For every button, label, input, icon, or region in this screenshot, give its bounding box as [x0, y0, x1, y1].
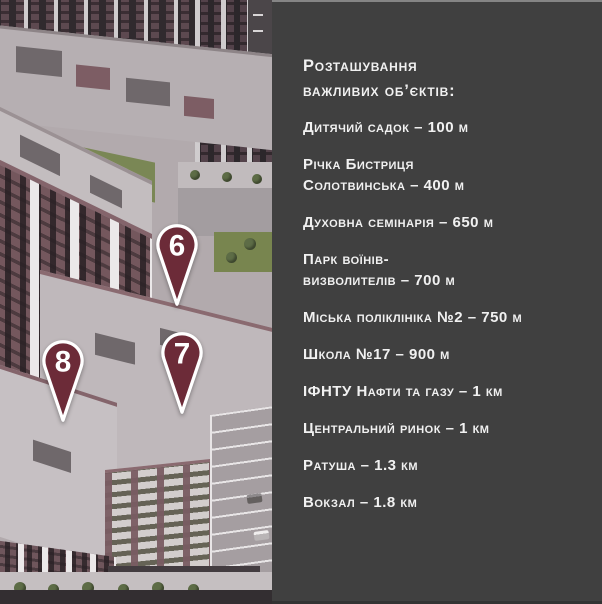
rooftop-box	[20, 135, 60, 177]
rooftop-box	[16, 46, 62, 77]
map-pin-8: 8	[40, 338, 86, 426]
crosswalk-mark	[253, 30, 263, 32]
location-item-market: Центральний ринок – 1 км	[303, 418, 580, 439]
location-item-kindergarten: Дитячий садок – 100 м	[303, 117, 580, 138]
location-item-station: Вокзал – 1.8 км	[303, 492, 580, 513]
tree	[244, 238, 256, 250]
crosswalk-mark	[253, 14, 263, 16]
map-pin-6: 6	[154, 222, 200, 310]
parking-lot	[210, 406, 272, 587]
lawn	[214, 232, 272, 272]
rooftop-gable	[184, 96, 214, 119]
rooftop-gable	[76, 64, 110, 90]
location-item-school: Школа №17 – 900 м	[303, 344, 580, 365]
aerial-render: 6 7 8	[0, 0, 272, 604]
tree	[190, 170, 200, 180]
location-item-polyclinic: Міська поліклініка №2 – 750 м	[303, 307, 580, 328]
pin-number: 6	[169, 229, 186, 262]
map-pin-7: 7	[159, 330, 205, 418]
locations-panel: Розташування важливих об’єктів: Дитячий …	[272, 0, 602, 604]
pin-number: 7	[174, 337, 191, 370]
road	[0, 590, 272, 604]
location-item-university: ІФНТУ Нафти та газу – 1 км	[303, 381, 580, 402]
location-item-townhall: Ратуша – 1.3 км	[303, 455, 580, 476]
tree	[222, 172, 232, 182]
sidewalk	[178, 162, 272, 188]
promo-image: 6 7 8 Розташування важливих об’єктів: Ди…	[0, 0, 602, 604]
top-road	[248, 0, 272, 58]
location-item-river: Річка Бистриця Солотвинська – 400 м	[303, 154, 580, 196]
tree	[226, 252, 237, 263]
panel-title: Розташування важливих об’єктів:	[303, 54, 580, 104]
location-item-seminary: Духовна семінарія – 650 м	[303, 212, 580, 233]
pin-number: 8	[55, 345, 72, 378]
sidewalk	[0, 572, 272, 592]
rooftop-box	[95, 333, 135, 365]
tree	[252, 174, 262, 184]
rooftop-box	[33, 440, 71, 473]
location-item-park: Парк воїнів- визволителів – 700 м	[303, 249, 580, 291]
rooftop-box	[126, 78, 170, 107]
rooftop-box	[90, 175, 122, 209]
